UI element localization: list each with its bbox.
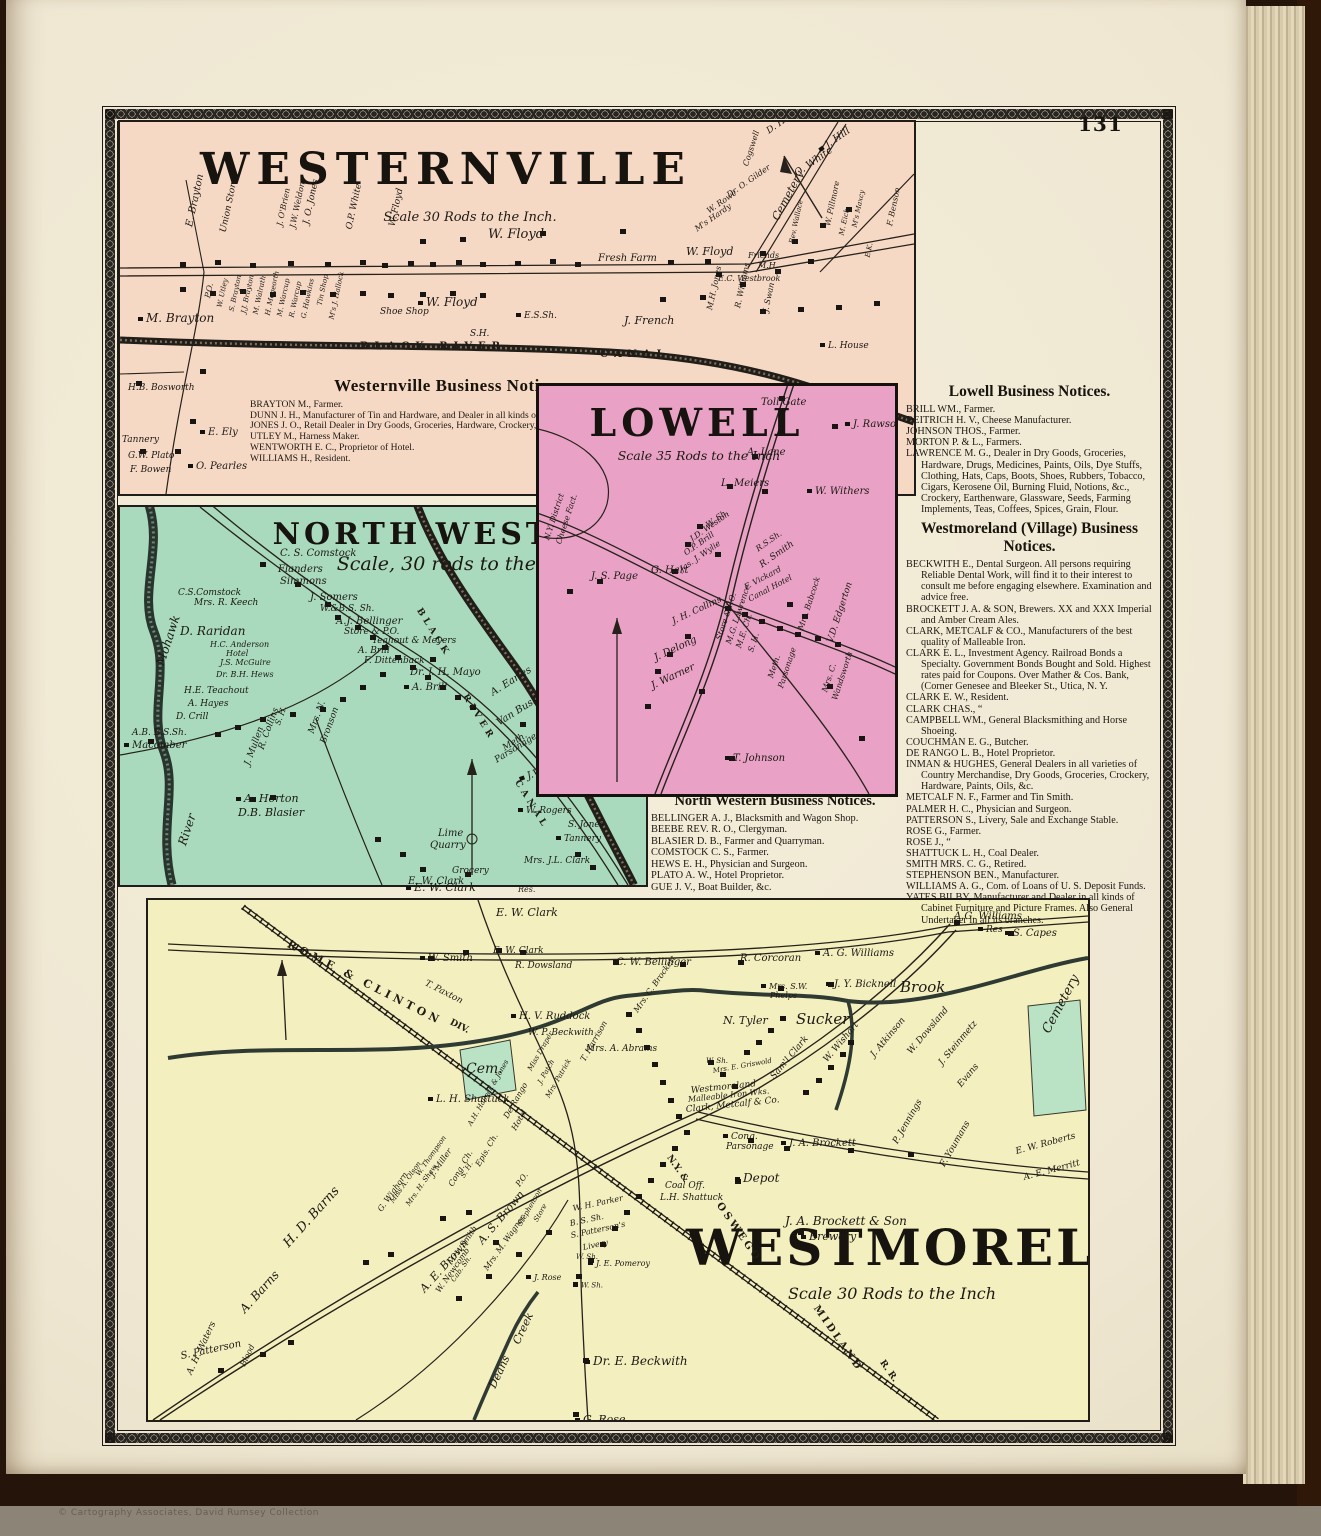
notice-item: DEITRICH H. V., Cheese Manufacturer. [906, 415, 1153, 426]
map-label: R. Williams [734, 262, 751, 309]
map-label: A. Lane [747, 448, 786, 458]
map-label: W. Utley [217, 278, 230, 308]
map-label: J. Atkinson [870, 1016, 908, 1059]
map-label: P.O. [204, 283, 215, 299]
map-label: C. W. Bellinger [616, 958, 691, 968]
map-label: P. Jennings [892, 1098, 925, 1145]
map-label: Mrs. R. Keech [194, 599, 258, 608]
map-label: E. W. Clark [496, 907, 558, 918]
map-label: Macomber [124, 741, 186, 751]
map-label: Epis. Ch. [475, 1132, 500, 1168]
map-label: J. A. Brockett [781, 1139, 856, 1149]
map-label: T. Paxton [423, 979, 464, 1006]
notice-item: PALMER H. C., Physician and Surgeon. [906, 804, 1153, 815]
map-label: F. Bowen [130, 466, 171, 475]
map-label: D. Crill [176, 713, 208, 722]
map-label: G. Hawkins [301, 278, 316, 319]
map-label: Cong. [723, 1133, 758, 1142]
notice-item: CLARK CHAS., “ [906, 704, 1153, 715]
map-label: BLACK [414, 607, 451, 659]
notice-item: BRILL WM., Farmer. [906, 404, 1153, 415]
notice-item: YATES BILBY, Manufacturer and Dealer in … [906, 892, 1153, 925]
map-label: H.C. Anderson [210, 641, 269, 649]
map-label: W. Withers [807, 487, 869, 497]
map-label: G. Rose [575, 1414, 625, 1422]
map-label: R. R. [877, 1359, 898, 1384]
map-label: E. Brayton [185, 173, 206, 228]
map-label: G.W. Plato [128, 452, 174, 461]
notice-item: CAMPBELL WM., General Blacksmithing and … [906, 715, 1153, 737]
map-label: O.P. White [346, 183, 364, 230]
map-label: Phelps [770, 992, 797, 1000]
map-label: C. S. Comstock [280, 549, 357, 559]
lowell-notices-list: BRILL WM., Farmer.DEITRICH H. V., Cheese… [906, 404, 1153, 515]
map-label: Shoe Shop [380, 308, 429, 317]
notice-item: COMSTOCK C. S., Farmer. [651, 847, 899, 858]
notice-item: BELLINGER A. J., Blacksmith and Wagon Sh… [651, 813, 899, 824]
map-label: RIVER [460, 693, 496, 743]
map-label: J.S. McGuire [220, 659, 271, 667]
map-label: J. Y. Bicknell [826, 980, 896, 990]
notice-item: LAWRENCE M. G., Dealer in Dry Goods, Gro… [906, 448, 1153, 515]
map-label: M. Brayton [138, 312, 214, 324]
map-label: W. Floyd [686, 246, 733, 257]
map-label: Lime [438, 829, 463, 839]
lowell-map: LOWELL Scale 35 Rods to the Inch Toll Ga… [536, 383, 898, 797]
map-label: W. Floyd [488, 228, 544, 241]
map-label: Evans [957, 1063, 982, 1090]
westmoreland-notices-list: BECKWITH E., Dental Surgeon. All persons… [906, 559, 1153, 926]
map-label: Parsonage [777, 647, 798, 690]
map-label: Sam'l Clark [770, 1035, 811, 1082]
map-label: N. Tyler [723, 1015, 768, 1026]
map-label: Blood [239, 1343, 256, 1367]
map-label: S. Patterson [180, 1339, 242, 1362]
map-label: C.S.Comstock [178, 589, 241, 598]
notice-item: ROSE G., Farmer. [906, 826, 1153, 837]
map-label: Fresh Farm [598, 254, 657, 264]
map-label: S.H. [470, 330, 489, 339]
border-chain-bottom [105, 1433, 1173, 1443]
north-western-business-notices: North Western Business Notices. BELLINGE… [651, 793, 899, 893]
map-label: F. Dittenback [364, 657, 425, 666]
map-label: Coal Off. [665, 1182, 705, 1191]
map-label: A.B. B.S.Sh. [132, 729, 187, 738]
map-label: Tannery [556, 835, 601, 844]
notice-item: BEEBE REV. R. O., Clergyman. [651, 824, 899, 835]
map-label: S. Jones [568, 821, 604, 830]
map-label: H.B. Bosworth [128, 384, 195, 393]
map-label: W. Rogers [518, 807, 572, 816]
map-label: J. Somers [310, 593, 358, 603]
map-label: T. Johnson [725, 754, 785, 764]
map-label: M.H. Jones [706, 265, 723, 310]
map-label: A. Horton [236, 793, 299, 804]
map-label: J. Warner [650, 663, 697, 692]
map-label: E.K. [865, 242, 875, 258]
map-label: Mrs. J.L. Clark [524, 857, 590, 866]
map-label: A.J. Bellinger [336, 617, 402, 627]
notice-item: JOHNSON THOS., Farmer. [906, 426, 1153, 437]
collection-credit: © Cartography Associates, David Rumsey C… [58, 1508, 319, 1518]
notice-item: INMAN & HUGHES, General Dealers in all v… [906, 759, 1153, 792]
north-western-notices-list: BELLINGER A. J., Blacksmith and Wagon Sh… [651, 813, 899, 893]
map-label: W.&B.S. Sh. [320, 605, 374, 614]
map-label: Dr. J. H. Mayo [410, 668, 481, 678]
map-label: Mrs. S.W. [761, 983, 807, 991]
map-label: Res [978, 926, 1003, 935]
map-label: J. E. Pomeroy [588, 1260, 650, 1268]
map-label: River [176, 812, 197, 847]
map-label: L. House [820, 342, 869, 351]
map-label: M. Eich [839, 208, 852, 236]
notice-item: MORTON P. & L., Farmers. [906, 437, 1153, 448]
map-label: J. Rose [526, 1274, 561, 1282]
map-label: A. E. Merritt [1023, 1159, 1081, 1183]
map-label: Tannery [122, 436, 159, 445]
notice-item: PATTERSON S., Livery, Sale and Exchange … [906, 815, 1153, 826]
map-label: H. V. Ruddock [511, 1012, 590, 1022]
map-label: DIV. [448, 1018, 470, 1035]
map-label: Dr. E. Beckwith [585, 1355, 688, 1367]
map-label: Grocery [452, 867, 489, 876]
map-label: Mrs. Babcock [797, 576, 822, 631]
map-label: Creek [511, 1311, 535, 1346]
notice-item: BROCKETT J. A. & SON, Brewers. XX and XX… [906, 604, 1153, 626]
map-label: W. Dowsland [907, 1006, 951, 1056]
map-label: O. White [793, 146, 835, 179]
lowell-labels: Toll GateJ. RawsonA. LaneL. MeiersW. Wit… [539, 386, 895, 794]
map-label: Depot [735, 1172, 779, 1184]
map-label: Rev. Wallace [789, 199, 805, 244]
map-label: L. H. Shattuck [428, 1095, 509, 1105]
map-label: S. Capes [1005, 929, 1057, 939]
map-label: A. Brill [358, 647, 390, 656]
border-chain-top [105, 109, 1173, 119]
notice-item: WILLIAMS A. G., Com. of Loans of U. S. D… [906, 881, 1153, 892]
map-label: Simmons [280, 577, 327, 587]
page-stack [1243, 6, 1305, 1484]
notice-item: SMITH MRS. C. G., Retired. [906, 859, 1153, 870]
map-label: M's Maxcy [852, 190, 867, 229]
map-label: ROME & CLINTON [286, 939, 445, 1027]
map-label: Deans [487, 1354, 512, 1390]
map-label: A. Hayes [188, 700, 228, 709]
map-label: Mohawk [154, 614, 181, 667]
map-label: R. Corcoran [740, 954, 801, 964]
map-label: E.C. Westbrook [718, 275, 780, 283]
map-label: L. Meiers [721, 479, 769, 489]
map-label: P.O. [515, 1171, 530, 1188]
map-label: Mrs. A. Abrams [586, 1045, 657, 1054]
map-label: Cemetery [1040, 973, 1082, 1036]
notice-item: DE RANGO L. B., Hotel Proprietor. [906, 748, 1153, 759]
notice-item: STEPHENSON BEN., Manufacturer. [906, 870, 1153, 881]
map-label: N.Y. & [664, 1154, 689, 1184]
notice-item: ROSE J., “ [906, 837, 1153, 848]
map-label: BLACK RIVER [360, 342, 506, 352]
map-label: Friends [748, 252, 779, 260]
map-label: J. S. Page [591, 572, 638, 582]
map-label: S. H. [747, 632, 761, 653]
notice-item: BECKWITH E., Dental Surgeon. All persons… [906, 559, 1153, 603]
map-label: A. G. Williams [815, 949, 894, 959]
map-label: Hotel [226, 650, 248, 658]
map-label: Brook [900, 980, 945, 995]
map-label: F. Youmans [939, 1120, 972, 1169]
map-label: Tin Shop [317, 274, 330, 306]
map-label: O. Pearles [188, 462, 247, 472]
notice-item: CLARK, METCALF & CO., Manufacturers of t… [906, 626, 1153, 648]
map-label: J. A. Brockett & Son [785, 1215, 907, 1227]
map-label: Wandsworth [831, 651, 854, 702]
page-number: 131 [1078, 112, 1123, 136]
map-label: R. Dowsland [515, 962, 572, 971]
map-label: Cogswell [742, 130, 761, 168]
map-label: J. Delong [653, 635, 699, 663]
map-label: H.E. Teachout [184, 687, 249, 696]
notice-item: COUCHMAN E. G., Butcher. [906, 737, 1153, 748]
map-label: E. Ely [200, 428, 238, 438]
map-label: Parsonage [726, 1143, 774, 1152]
map-label: Quarry [430, 841, 466, 851]
map-label: J. French [624, 315, 674, 326]
notice-item: PLATO A. W., Hotel Proprietor. [651, 870, 899, 881]
north-western-notices-title: North Western Business Notices. [651, 793, 899, 810]
map-label: E. W. Clark [408, 877, 464, 887]
map-label: W. Pillmore [824, 180, 841, 227]
map-label: W. Sh. [573, 1282, 603, 1290]
map-label: OSWEGO [714, 1201, 762, 1264]
map-label: W. Floyd [389, 188, 406, 228]
map-label: Flanders [278, 565, 323, 575]
map-label: G. Hart [651, 566, 688, 576]
map-label: A. Barns [238, 1268, 282, 1315]
notice-item: HEWS E. H., Physician and Surgeon. [651, 859, 899, 870]
border-chain-left [105, 109, 115, 1443]
map-label: L.H. Shattuck [660, 1194, 723, 1203]
map-label: H. D. Barns [281, 1184, 342, 1249]
map-label: D. Hall [765, 120, 796, 136]
map-label: D. Raridan [180, 625, 245, 637]
map-label: A. Brill [404, 683, 447, 693]
map-label: J. Steinmetz [938, 1020, 980, 1068]
map-label: W. H. Parker [572, 1194, 624, 1212]
map-label: F. Benson [886, 187, 902, 227]
notice-item: SHATTUCK L. H., Coal Dealer. [906, 848, 1153, 859]
map-label: A. Earles [489, 665, 533, 698]
map-label: V.D. Edgerton [827, 581, 855, 644]
westmoreland-labels: E. W. ClarkW. SmithE. W. ClarkR. Dowslan… [148, 900, 1088, 1420]
map-label: M.H. [758, 262, 778, 270]
notice-item: CLARK E. W., Resident. [906, 692, 1153, 703]
border-chain-right [1163, 109, 1173, 1443]
right-column-notices: Lowell Business Notices. BRILL WM., Farm… [906, 383, 1153, 926]
map-label: W. Smith [420, 954, 473, 964]
map-label: J. H. Collins [671, 596, 723, 627]
map-label: W. P. Beckwith [528, 1029, 594, 1038]
map-label: MIDLAND [811, 1304, 864, 1374]
map-label: CANAL [600, 350, 670, 360]
atlas-page: 131 WESTERNVILLE Scale 30 Rods to the In… [6, 0, 1246, 1474]
notice-item: CLARK E. L., Investment Agency. Railroad… [906, 648, 1153, 692]
notice-item: METCALF N. F., Farmer and Tin Smith. [906, 792, 1153, 803]
notice-item: GUE J. V., Boat Builder, &c. [651, 882, 899, 893]
map-label: E. W. Clark [493, 947, 544, 956]
map-label: T. Harrison [580, 1020, 610, 1063]
map-label: E.S.Sh. [516, 312, 557, 321]
map-label: J. Swan [762, 282, 776, 313]
map-label: E. W. Roberts [1015, 1132, 1077, 1157]
map-label: J. Rawson [845, 420, 898, 430]
map-label: M's J. Hallock [329, 271, 346, 320]
westmoreland-map: WESTMORELAND Scale 30 Rods to the Inch E… [146, 898, 1090, 1422]
map-label: W. Floyd [418, 296, 478, 308]
map-label: Store [533, 1203, 549, 1223]
map-label: Brewery [801, 1231, 856, 1242]
map-label: Livery [582, 1239, 609, 1252]
lowell-notices-title: Lowell Business Notices. [906, 383, 1153, 401]
map-label: Sucker [796, 1012, 849, 1027]
notice-item: BLASIER D. B., Farmer and Quarryman. [651, 836, 899, 847]
map-label: Union Store [220, 178, 240, 234]
map-label: D.B. Blasier [238, 807, 304, 818]
westmoreland-notices-title: Westmoreland (Village) Business Notices. [906, 520, 1153, 556]
map-label: Dr. B.H. Hews [216, 671, 274, 679]
map-label: Toll Gate [761, 398, 806, 408]
